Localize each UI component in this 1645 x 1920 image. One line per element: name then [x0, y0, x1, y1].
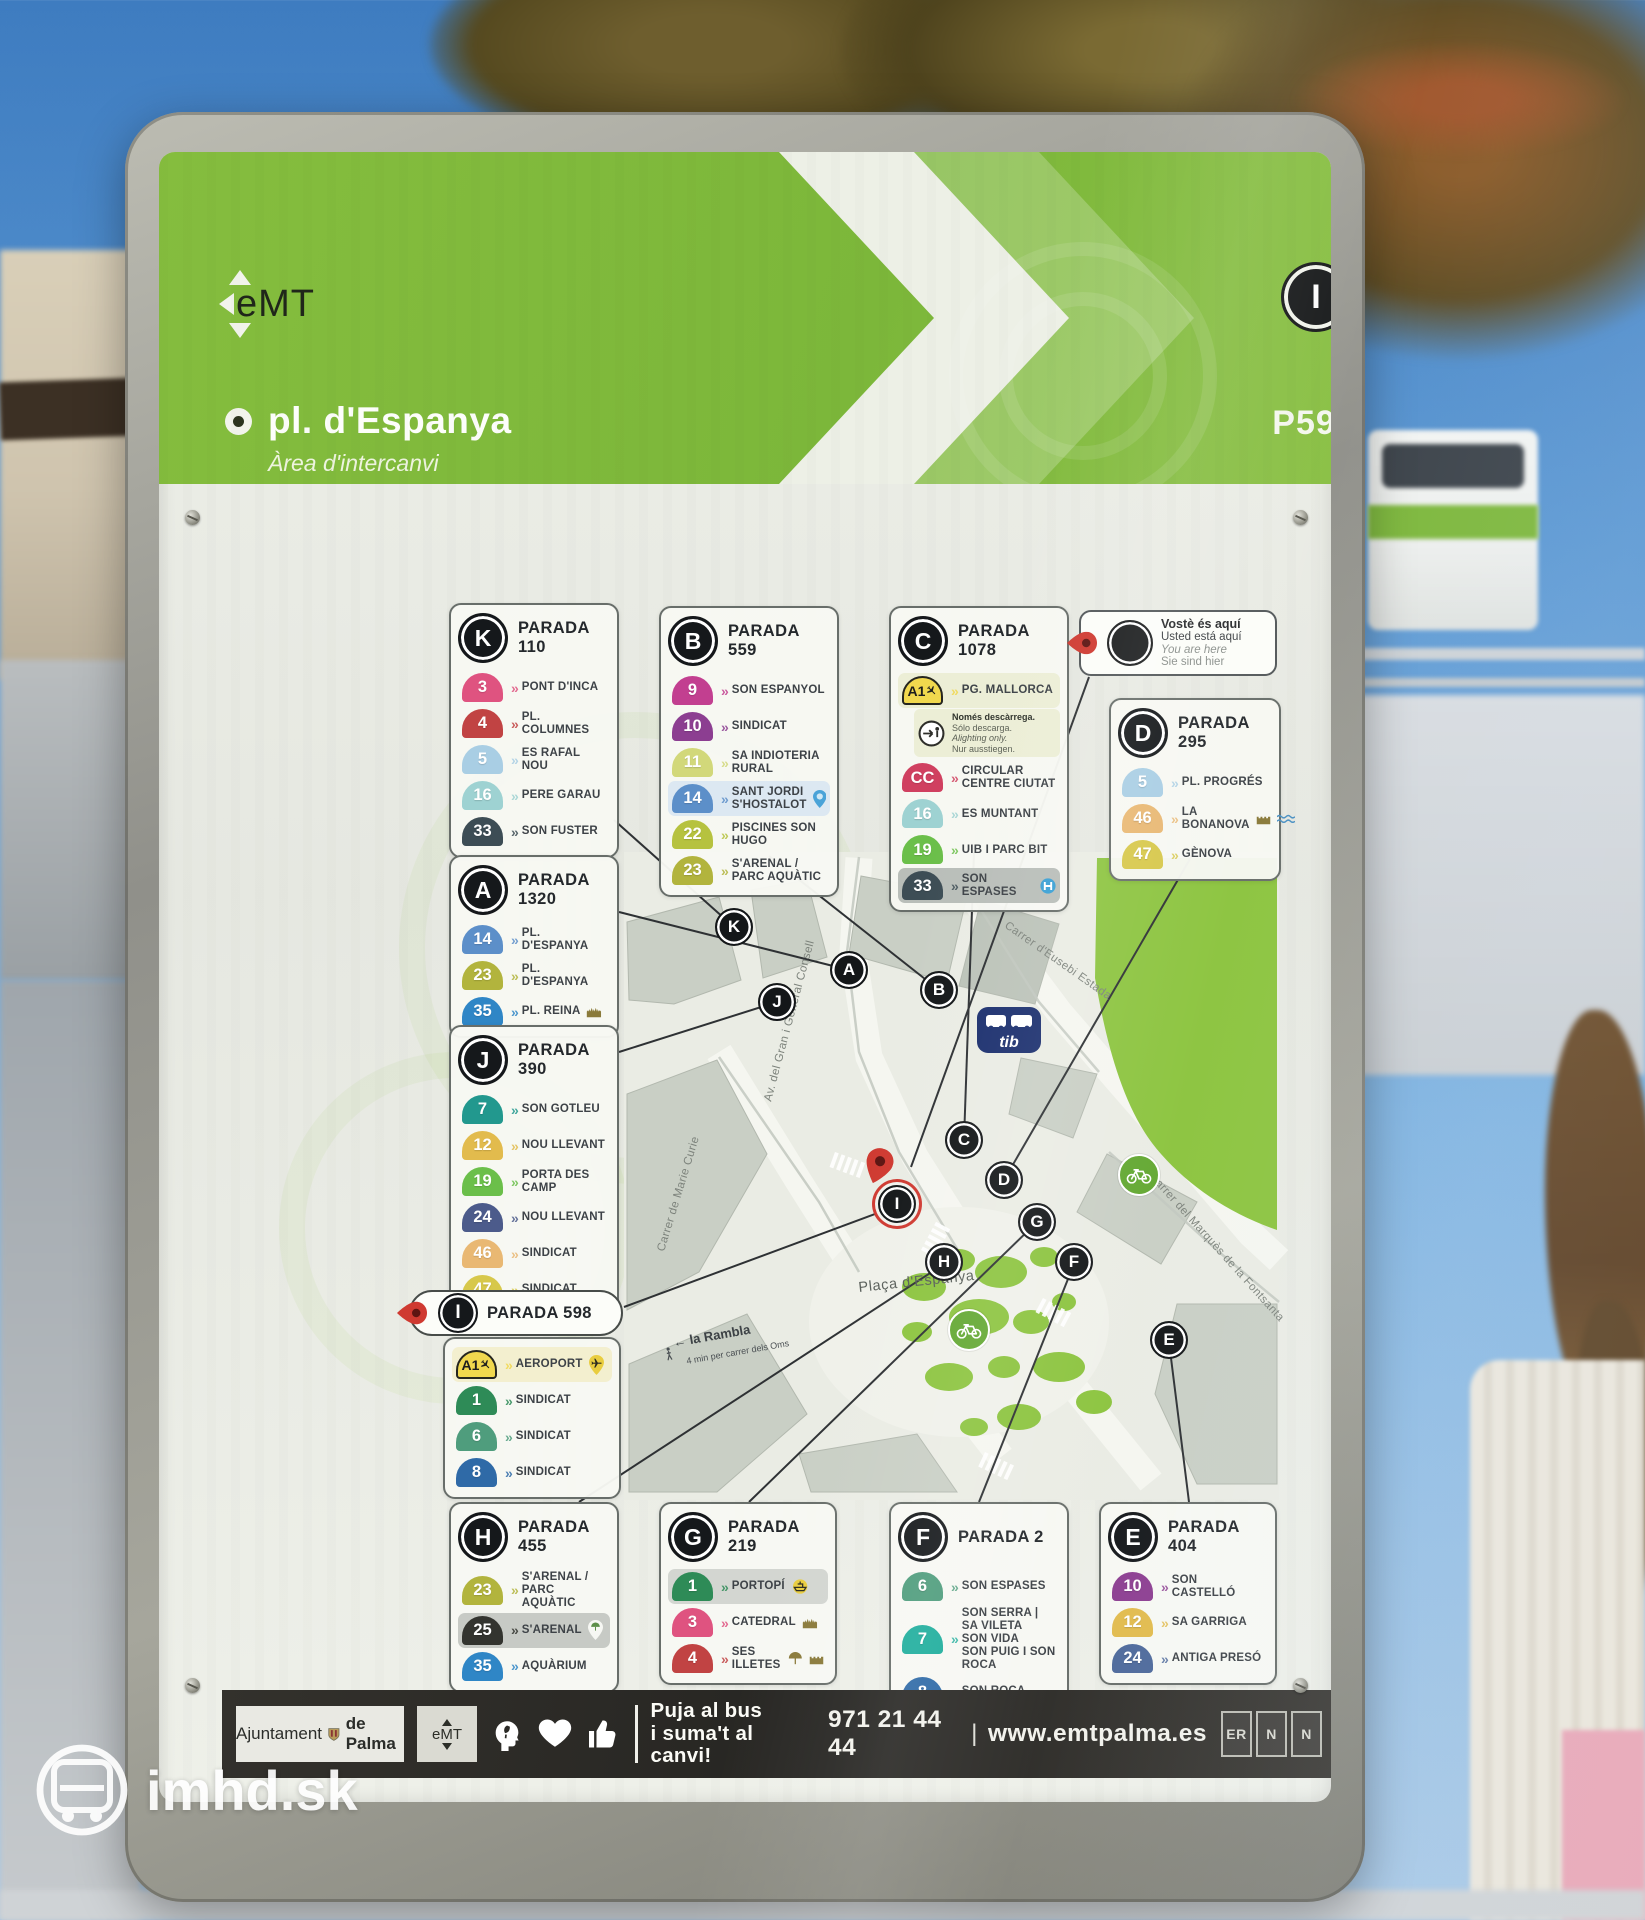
route-row: 23»PL. D'ESPANYA — [458, 958, 610, 993]
current-stop-circle — [1107, 620, 1153, 666]
watermark-text: imhd.sk — [146, 1758, 358, 1823]
destination-line: ES RAFAL NOU — [522, 747, 606, 773]
route-number: 9 — [688, 682, 697, 699]
route-destination: NOU LLEVANT — [522, 1211, 605, 1224]
route-chevron-icon: » — [511, 1582, 519, 1598]
route-number-badge: 23 — [462, 961, 503, 990]
route-chevron-icon: » — [951, 1631, 959, 1647]
screw — [185, 1678, 200, 1693]
route-row: A1»AEROPORT — [452, 1347, 612, 1382]
route-chevron-icon: » — [951, 878, 959, 894]
parada-title: PARADA 404 — [1168, 1518, 1268, 1556]
route-row: 35»PL. REINA — [458, 994, 610, 1029]
ship-icon — [791, 1579, 809, 1594]
alighting-note: Només descàrrega.Sólo descarga.Alighting… — [914, 709, 1060, 757]
awning — [0, 378, 141, 441]
thumbs-up-icon — [586, 1716, 622, 1752]
alighting-note-text: Només descàrrega.Sólo descarga.Alighting… — [952, 712, 1035, 754]
footer-divider — [635, 1705, 638, 1763]
sign-footer: Ajuntament de Palma eMT Puja al bus i su… — [222, 1690, 1331, 1778]
route-chevron-icon: » — [505, 1429, 513, 1445]
route-destination: SON ESPASES — [962, 873, 1034, 899]
route-number: 3 — [478, 679, 487, 696]
route-row: 19»PORTA DES CAMP — [458, 1164, 610, 1199]
stop-letter-badge: A — [458, 865, 508, 915]
phone-number: 971 21 44 44 — [828, 1706, 961, 1762]
destination-line: SA GARRIGA — [1172, 1616, 1247, 1629]
route-destination: PL. COLUMNES — [522, 711, 606, 737]
destination-line: LA BONANOVA — [1182, 806, 1250, 832]
parada-box-G: GPARADA 2191»PORTOPÍ3»CATEDRAL4»SES ILLE… — [659, 1502, 837, 1685]
cathedral-icon — [586, 1005, 602, 1018]
route-destination: GÈNOVA — [1182, 848, 1232, 861]
route-number-badge: A1 — [456, 1350, 497, 1379]
route-destination: ES RAFAL NOU — [522, 747, 606, 773]
route-row: 16»PERE GARAU — [458, 778, 610, 813]
route-destination: SANT JORDIS'HOSTALOT — [732, 786, 807, 812]
route-number-badge: 24 — [462, 1203, 503, 1232]
route-number: 33 — [473, 823, 491, 840]
destination-line: S'HOSTALOT — [732, 799, 807, 812]
route-number: 46 — [473, 1245, 491, 1262]
you-are-here-pin-icon — [397, 1296, 427, 1330]
route-destination: SON ESPANYOL — [732, 684, 825, 697]
route-destination: PL. PROGRÉS — [1182, 776, 1263, 789]
route-number-badge: 11 — [672, 748, 713, 777]
route-destination: CIRCULARCENTRE CIUTAT — [962, 765, 1056, 791]
destination-line: S'ARENAL — [522, 1624, 582, 1637]
route-destination: PORTOPÍ — [732, 1580, 785, 1593]
route-row: 6»SON ESPASES — [898, 1569, 1060, 1604]
ajuntament-text: Ajuntament — [236, 1724, 322, 1744]
pin-icon — [813, 790, 827, 808]
screw — [1293, 510, 1308, 525]
mind-eco-icon — [490, 1717, 524, 1751]
parada-title: PARADA 219 — [728, 1518, 828, 1556]
destination-line: SINDICAT — [522, 1247, 577, 1260]
route-number-badge: 9 — [672, 676, 713, 705]
route-row: 5»PL. PROGRÉS — [1118, 765, 1272, 800]
route-chevron-icon: » — [951, 842, 959, 858]
route-destination: S'ARENAL /PARC AQUÀTIC — [522, 1571, 606, 1610]
route-number-badge: 35 — [462, 1652, 503, 1681]
parada-header: GPARADA 219 — [668, 1512, 828, 1562]
destination-line: GÈNOVA — [1182, 848, 1232, 861]
alighting-only-icon — [918, 720, 945, 747]
destination-line: SON ESPANYOL — [732, 684, 825, 697]
destination-line: PISCINES SON HUGO — [732, 822, 826, 848]
route-destination: UIB I PARC BIT — [962, 844, 1048, 857]
hospital-icon — [1040, 878, 1056, 894]
route-number-badge: 19 — [902, 835, 943, 864]
route-row: 3»CATEDRAL — [668, 1605, 828, 1640]
destination-line: SON SERRA | SA VILETA — [962, 1607, 1056, 1633]
route-chevron-icon: » — [1161, 1651, 1169, 1667]
map-marker-J: J — [758, 983, 796, 1021]
parada-header: DPARADA 295 — [1118, 708, 1272, 758]
svg-text:tib: tib — [999, 1034, 1019, 1051]
route-chevron-icon: » — [511, 752, 519, 768]
parada-title: PARADA 559 — [728, 622, 830, 660]
parada-header: EPARADA 404 — [1108, 1512, 1268, 1562]
route-number: 10 — [683, 718, 701, 735]
you-are-here-pin-icon — [1067, 626, 1097, 660]
route-row: 3»PONT D'INCA — [458, 670, 610, 705]
route-number-badge: 4 — [672, 1644, 713, 1673]
route-chevron-icon: » — [721, 755, 729, 771]
parada-header: JPARADA 390 — [458, 1035, 610, 1085]
castle-icon — [809, 1653, 824, 1665]
route-chevron-icon: » — [511, 1174, 519, 1190]
route-number: 7 — [918, 1631, 927, 1648]
route-destination: SINDICAT — [516, 1394, 571, 1407]
route-destination: LA BONANOVA — [1182, 806, 1250, 832]
route-number: 4 — [688, 1650, 697, 1667]
parada-header: HPARADA 455 — [458, 1512, 610, 1562]
destination-line: PL. D'ESPANYA — [522, 963, 606, 989]
route-row: 10»SINDICAT — [668, 709, 830, 744]
route-row: 47»GÈNOVA — [1118, 837, 1272, 872]
route-chevron-icon: » — [511, 1658, 519, 1674]
route-number: 14 — [473, 931, 491, 948]
route-number-badge: 7 — [462, 1095, 503, 1124]
route-destination: S'ARENAL — [522, 1624, 582, 1637]
destination-line: ANTIGA PRESÓ — [1172, 1652, 1262, 1665]
route-destination: SON ESPASES — [962, 1580, 1046, 1593]
route-chevron-icon: » — [951, 770, 959, 786]
parada-title: PARADA 110 — [518, 619, 610, 657]
route-row: A1»PG. MALLORCA — [898, 673, 1060, 708]
route-chevron-icon: » — [511, 1246, 519, 1262]
you-are-here-es: Usted está aquí — [1161, 631, 1242, 643]
destination-line: PG. MALLORCA — [962, 684, 1053, 697]
certification-mark: ER — [1221, 1711, 1252, 1757]
screw — [1293, 1678, 1308, 1693]
bus-stop-sign: eMT pl. d'Espanya Àrea d'intercanvi I P5… — [125, 112, 1365, 1902]
parada-box-E: EPARADA 40410»SON CASTELLÓ12»SA GARRIGA2… — [1099, 1502, 1277, 1685]
route-row: 46»LA BONANOVA — [1118, 801, 1272, 836]
route-number: 5 — [1138, 774, 1147, 791]
route-row: 22»PISCINES SON HUGO — [668, 817, 830, 852]
certification-mark: N — [1256, 1711, 1287, 1757]
route-number: 10 — [1123, 1578, 1141, 1595]
route-row: 10»SON CASTELLÓ — [1108, 1569, 1268, 1604]
route-chevron-icon: » — [511, 932, 519, 948]
route-row: 25»S'ARENAL — [458, 1613, 610, 1648]
stop-letter-badge: G — [668, 1512, 718, 1562]
route-chevron-icon: » — [511, 824, 519, 840]
route-chevron-icon: » — [721, 1579, 729, 1595]
route-row: 12»SA GARRIGA — [1108, 1605, 1268, 1640]
parada-header: FPARADA 2 — [898, 1512, 1060, 1562]
destination-line: SANT JORDI — [732, 786, 807, 799]
route-number: 8 — [472, 1464, 481, 1481]
route-chevron-icon: » — [1161, 1615, 1169, 1631]
route-number-badge: 1 — [456, 1386, 497, 1415]
waves-icon — [1277, 814, 1295, 823]
route-destination: SES ILLETES — [732, 1646, 783, 1672]
route-destination: PL. REINA — [522, 1005, 581, 1018]
parada-box-H: HPARADA 45523»S'ARENAL /PARC AQUÀTIC25»S… — [449, 1502, 619, 1693]
route-number: 6 — [918, 1578, 927, 1595]
plane-icon — [924, 683, 940, 699]
destination-line: S'ARENAL / — [522, 1571, 606, 1584]
tib-logo: tib — [977, 1007, 1041, 1053]
emt-mini-arrow-up-icon — [442, 1719, 452, 1726]
route-number: 11 — [684, 754, 701, 771]
route-number: 7 — [478, 1101, 487, 1118]
route-row: 1»SINDICAT — [452, 1383, 612, 1418]
parada-title: PARADA 295 — [1178, 714, 1272, 752]
route-number-badge: 22 — [672, 820, 713, 849]
route-number-badge: 7 — [902, 1625, 943, 1654]
stop-letter-badge: J — [458, 1035, 508, 1085]
route-row: 12»NOU LLEVANT — [458, 1128, 610, 1163]
you-are-here-legend: Vostè és aquí Usted está aquí You are he… — [1079, 610, 1277, 676]
route-destination: PG. MALLORCA — [962, 684, 1053, 697]
airport-pin-icon — [589, 1355, 604, 1375]
route-number-badge: 19 — [462, 1167, 503, 1196]
sign-panel: eMT pl. d'Espanya Àrea d'intercanvi I P5… — [159, 152, 1331, 1802]
destination-line: SINDICAT — [516, 1430, 571, 1443]
route-row: 23»S'ARENAL /PARC AQUÀTIC — [668, 853, 830, 888]
route-chevron-icon: » — [511, 1102, 519, 1118]
destination-line: S'ARENAL / — [732, 858, 821, 871]
route-number-badge: 4 — [462, 709, 503, 738]
parada-box-J: JPARADA 3907»SON GOTLEU12»NOU LLEVANT19»… — [449, 1025, 619, 1316]
bike-parking-icon — [1118, 1154, 1160, 1196]
route-number-badge: 47 — [1122, 840, 1163, 869]
destination-line: SON GOTLEU — [522, 1103, 600, 1116]
route-number: 23 — [473, 967, 491, 984]
route-number-badge: 25 — [462, 1616, 503, 1645]
destination-line: SON PUIG I SON ROCA — [962, 1646, 1056, 1672]
footer-separator: | — [971, 1720, 978, 1748]
parada-box-I: A1»AEROPORT1»SINDICAT6»SINDICAT8»SINDICA… — [443, 1337, 621, 1499]
imhd-logo-icon — [34, 1742, 130, 1838]
route-row: 33»SON ESPASES — [898, 868, 1060, 903]
destination-line: PONT D'INCA — [522, 681, 599, 694]
route-number-badge: 35 — [462, 997, 503, 1026]
destination-line: PL. REINA — [522, 1005, 581, 1018]
route-number-badge: 16 — [902, 799, 943, 828]
destination-line: SON ESPASES — [962, 873, 1034, 899]
route-chevron-icon: » — [505, 1465, 513, 1481]
route-number: 16 — [913, 806, 931, 823]
map-marker-B: B — [920, 971, 958, 1009]
route-number-badge: 3 — [672, 1608, 713, 1637]
route-number: 25 — [473, 1622, 491, 1639]
route-number-badge: 24 — [1112, 1644, 1153, 1673]
beach-pin-icon — [588, 1620, 603, 1640]
route-chevron-icon: » — [721, 683, 729, 699]
route-number: 33 — [913, 878, 931, 895]
route-destination: SON CASTELLÓ — [1172, 1574, 1264, 1600]
destination-line: SON ESPASES — [962, 1580, 1046, 1593]
route-number-badge: 1 — [672, 1572, 713, 1601]
parada-header: BPARADA 559 — [668, 616, 830, 666]
emt-footer-logo: eMT — [417, 1706, 477, 1762]
route-number-badge: 23 — [462, 1576, 503, 1605]
route-row: 46»SINDICAT — [458, 1236, 610, 1271]
route-number: 35 — [473, 1658, 491, 1675]
parada-title: PARADA 598 — [487, 1304, 592, 1323]
stop-letter-badge: H — [458, 1512, 508, 1562]
stop-letter-badge: D — [1118, 708, 1168, 758]
you-are-here-en: You are here — [1161, 644, 1242, 656]
route-number-badge: 8 — [456, 1458, 497, 1487]
map-marker-C: C — [945, 1121, 983, 1159]
website-url: www.emtpalma.es — [988, 1720, 1207, 1748]
destination-line: AQUÀRIUM — [522, 1660, 587, 1673]
stop-letter-badge: E — [1108, 1512, 1158, 1562]
route-number-badge: CC — [902, 763, 943, 792]
destination-line: PL. PROGRÉS — [1182, 776, 1263, 789]
route-row: 35»AQUÀRIUM — [458, 1649, 610, 1684]
parada-title: PARADA 1320 — [518, 871, 610, 909]
route-number-badge: 10 — [1112, 1572, 1153, 1601]
route-chevron-icon: » — [951, 1579, 959, 1595]
map-marker-K: K — [715, 908, 753, 946]
destination-line: AEROPORT — [516, 1358, 583, 1371]
route-number: 23 — [473, 1582, 491, 1599]
route-number: 22 — [683, 826, 701, 843]
route-chevron-icon: » — [721, 1651, 729, 1667]
route-number-badge: 14 — [462, 925, 503, 954]
route-destination: SON GOTLEU — [522, 1103, 600, 1116]
route-row: 7»SON GOTLEU — [458, 1092, 610, 1127]
stop-letter-badge: I — [438, 1293, 478, 1333]
parada-box-K: KPARADA 1103»PONT D'INCA4»PL. COLUMNES5»… — [449, 603, 619, 858]
route-chevron-icon: » — [721, 827, 729, 843]
route-chevron-icon: » — [505, 1393, 513, 1409]
bike-parking-icon — [948, 1309, 990, 1351]
route-row: 9»SON ESPANYOL — [668, 673, 830, 708]
destination-line: UIB I PARC BIT — [962, 844, 1048, 857]
route-chevron-icon: » — [951, 683, 959, 699]
route-chevron-icon: » — [721, 1615, 729, 1631]
route-destination: ANTIGA PRESÓ — [1172, 1652, 1262, 1665]
destination-line: SINDICAT — [516, 1394, 571, 1407]
stop-letter-badge: F — [898, 1512, 948, 1562]
route-destination: SINDICAT — [732, 720, 787, 733]
route-destination: PERE GARAU — [522, 789, 601, 802]
umbrella-icon — [788, 1652, 803, 1665]
route-destination: PONT D'INCA — [522, 681, 599, 694]
parada-box-A: APARADA 132014»PL. D'ESPANYA23»PL. D'ESP… — [449, 855, 619, 1038]
stop-letter-badge: C — [898, 616, 948, 666]
map-marker-E: E — [1150, 1321, 1188, 1359]
destination-line: SON FUSTER — [522, 825, 598, 838]
route-number-badge: 33 — [462, 817, 503, 846]
plane-icon — [478, 1357, 494, 1373]
destination-line: NOU LLEVANT — [522, 1211, 605, 1224]
destination-line: PORTOPÍ — [732, 1580, 785, 1593]
route-destination: ES MUNTANT — [962, 808, 1039, 821]
route-number-badge: 12 — [1112, 1608, 1153, 1637]
route-number-badge: 3 — [462, 673, 503, 702]
destination-line: CATEDRAL — [732, 1616, 796, 1629]
map-marker-G: G — [1018, 1203, 1056, 1241]
destination-line: PL. COLUMNES — [522, 711, 606, 737]
route-row: 16»ES MUNTANT — [898, 796, 1060, 831]
route-number-badge: 5 — [462, 745, 503, 774]
destination-line: NOU LLEVANT — [522, 1139, 605, 1152]
bus-windshield — [1382, 444, 1524, 488]
castle-icon — [1256, 813, 1271, 825]
route-chevron-icon: » — [721, 719, 729, 735]
route-row: 4»SES ILLETES — [668, 1641, 828, 1676]
route-number: 23 — [683, 862, 701, 879]
destination-line: SON VIDA — [962, 1633, 1056, 1646]
route-number-badge: 6 — [902, 1572, 943, 1601]
you-are-here-ca: Vostè és aquí — [1161, 618, 1242, 632]
route-row: 19»UIB I PARC BIT — [898, 832, 1060, 867]
route-chevron-icon: » — [721, 791, 729, 807]
route-number-badge: 6 — [456, 1422, 497, 1451]
route-chevron-icon: » — [1171, 847, 1179, 863]
destination-line: SA INDIOTERIA RURAL — [732, 750, 826, 776]
route-row: 33»SON FUSTER — [458, 814, 610, 849]
route-chevron-icon: » — [511, 1138, 519, 1154]
palma-shield-icon — [328, 1726, 340, 1743]
certification-logos: ERNN — [1221, 1711, 1322, 1757]
parada-title: PARADA 390 — [518, 1041, 610, 1079]
route-number: 19 — [913, 842, 931, 859]
route-number: 5 — [478, 751, 487, 768]
route-number: 19 — [473, 1173, 491, 1190]
map-marker-I: I — [878, 1185, 916, 1223]
route-destination: CATEDRAL — [732, 1616, 796, 1629]
route-number: 24 — [473, 1209, 491, 1226]
route-row: 1»PORTOPÍ — [668, 1569, 828, 1604]
route-number: 47 — [1133, 846, 1151, 863]
route-chevron-icon: » — [1171, 775, 1179, 791]
route-number-badge: 10 — [672, 712, 713, 741]
route-row: 6»SINDICAT — [452, 1419, 612, 1454]
route-row: 11»SA INDIOTERIA RURAL — [668, 745, 830, 780]
map-marker-H: H — [925, 1243, 963, 1281]
destination-line: CENTRE CIUTAT — [962, 778, 1056, 791]
route-destination: SON SERRA | SA VILETASON VIDASON PUIG I … — [962, 1607, 1056, 1671]
route-row: 8»SINDICAT — [452, 1455, 612, 1490]
railing — [1350, 648, 1645, 660]
destination-line: SINDICAT — [732, 720, 787, 733]
photo-watermark: imhd.sk — [34, 1742, 358, 1838]
route-number: 6 — [472, 1428, 481, 1445]
route-number: 46 — [1133, 810, 1151, 827]
route-destination: SA GARRIGA — [1172, 1616, 1247, 1629]
destination-line: PORTA DES CAMP — [522, 1169, 606, 1195]
map-marker-D: D — [985, 1161, 1023, 1199]
you-are-here-de: Sie sind hier — [1161, 656, 1242, 668]
route-number: 14 — [683, 790, 701, 807]
parada-box-D: DPARADA 2955»PL. PROGRÉS46»LA BONANOVA47… — [1109, 698, 1281, 881]
route-chevron-icon: » — [1171, 811, 1179, 827]
route-chevron-icon: » — [511, 680, 519, 696]
route-row: CC»CIRCULARCENTRE CIUTAT — [898, 760, 1060, 795]
route-number-badge: 33 — [902, 871, 943, 900]
destination-line: PL. D'ESPANYA — [522, 927, 606, 953]
route-chevron-icon: » — [505, 1357, 513, 1373]
route-destination: SINDICAT — [516, 1430, 571, 1443]
railing — [1350, 678, 1645, 687]
bus-stripe — [1368, 505, 1538, 539]
destination-line: CIRCULAR — [962, 765, 1056, 778]
slogan-line1: Puja al bus — [651, 1700, 815, 1723]
certification-mark: N — [1291, 1711, 1322, 1757]
route-number: 16 — [473, 787, 491, 804]
